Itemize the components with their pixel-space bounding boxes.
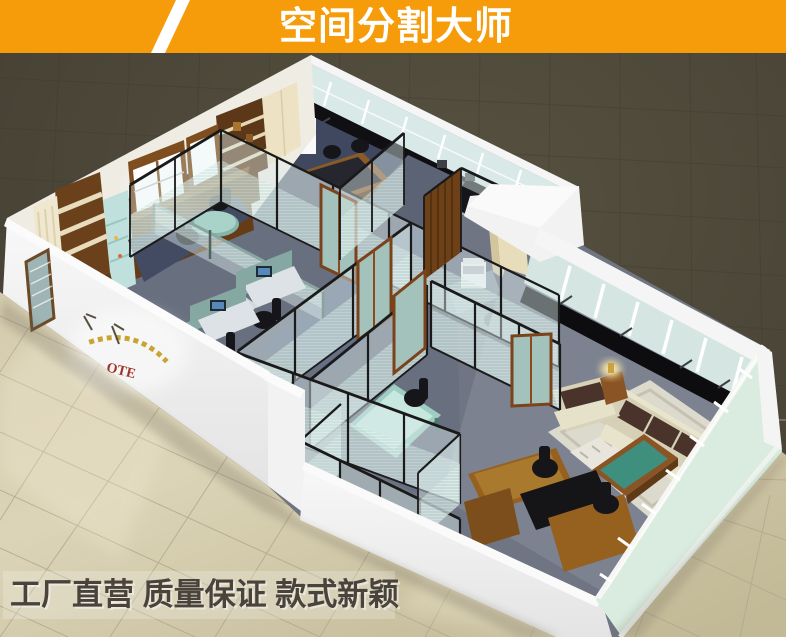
svg-text:工厂直营 质量保证 款式新颖: 工厂直营 质量保证 款式新颖 — [10, 577, 399, 612]
svg-text:空间分割大师: 空间分割大师 — [279, 6, 513, 48]
